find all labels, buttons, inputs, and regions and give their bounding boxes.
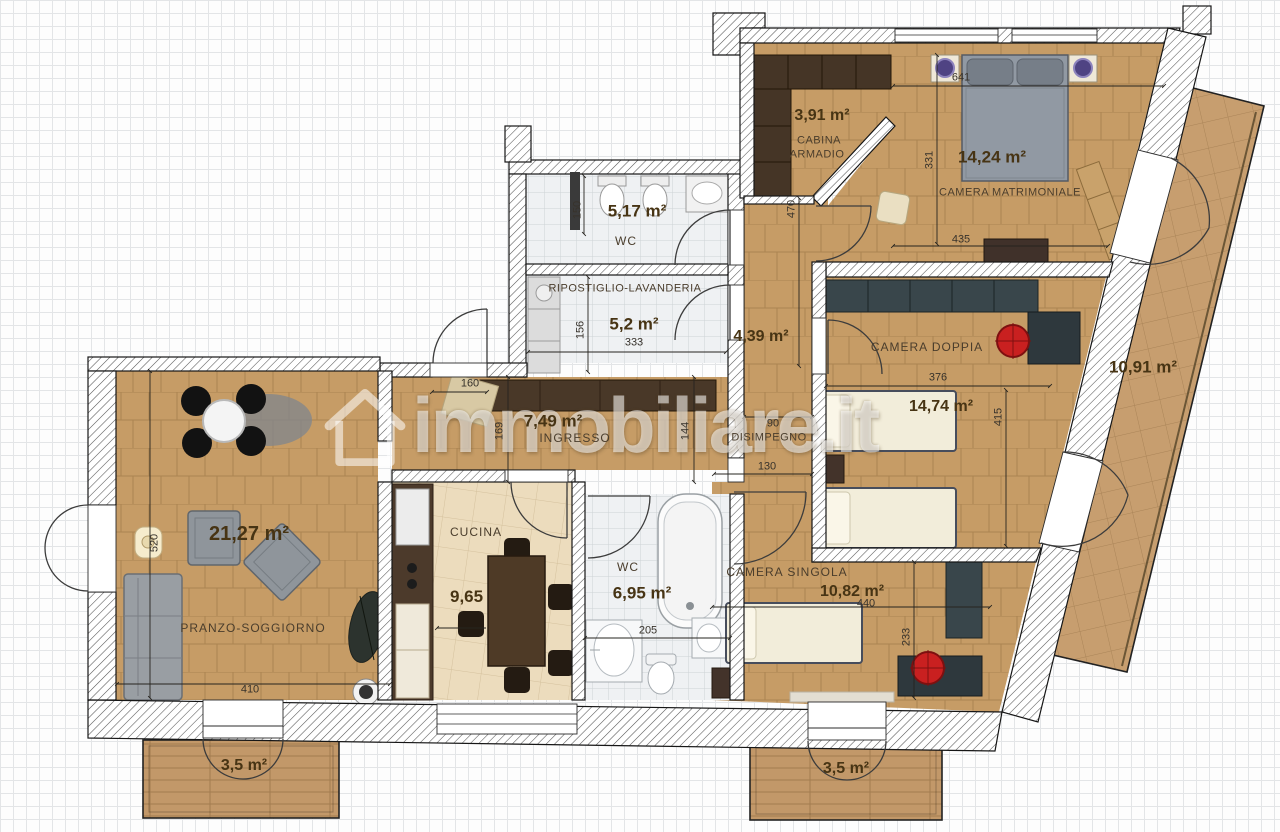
wall-stub: [570, 172, 580, 230]
door-opening: [505, 470, 568, 482]
floor-balcone-dx: [750, 742, 942, 820]
desk: [1028, 312, 1080, 364]
double-bed: [962, 55, 1068, 181]
shelf: [790, 692, 894, 702]
floor-corridoio: [744, 195, 812, 482]
armchair: [188, 511, 240, 565]
window: [895, 29, 998, 42]
kitchen-counter: [392, 484, 433, 700]
single-bed: [818, 488, 956, 548]
wall-chimney: [505, 126, 531, 162]
floor-plan-drawing: 9,65 m² 284: [0, 0, 1280, 832]
balcony-door-sill: [203, 700, 283, 738]
pouf: [876, 191, 911, 226]
french-door-arcs: [45, 505, 88, 591]
door-opening: [728, 458, 744, 482]
sofa: [124, 574, 182, 700]
wardrobe-singola: [946, 556, 982, 638]
floor-lamp: [135, 527, 162, 558]
wc-fixtures: [598, 176, 728, 216]
washer-column: [528, 277, 560, 373]
door-arc: [433, 309, 487, 363]
window: [1012, 29, 1097, 42]
nightstand: [931, 55, 959, 82]
nightstand: [1069, 55, 1097, 82]
window: [437, 704, 577, 734]
wardrobe-doppia: [826, 280, 1038, 312]
entrance-opening: [430, 363, 487, 377]
door-opening: [812, 318, 826, 374]
french-door-opening: [88, 505, 116, 592]
single-bed: [726, 603, 862, 663]
floor-plan-page: 9,65 m² 284: [0, 0, 1280, 832]
bathroom-sink: [586, 620, 642, 682]
entry-closet: [480, 380, 716, 411]
balcony-door-sill: [808, 702, 886, 740]
bathtub: [658, 494, 722, 628]
dresser: [984, 239, 1048, 262]
single-bed: [818, 391, 956, 451]
wall-chimney: [1183, 6, 1211, 34]
toilet: [646, 654, 676, 694]
